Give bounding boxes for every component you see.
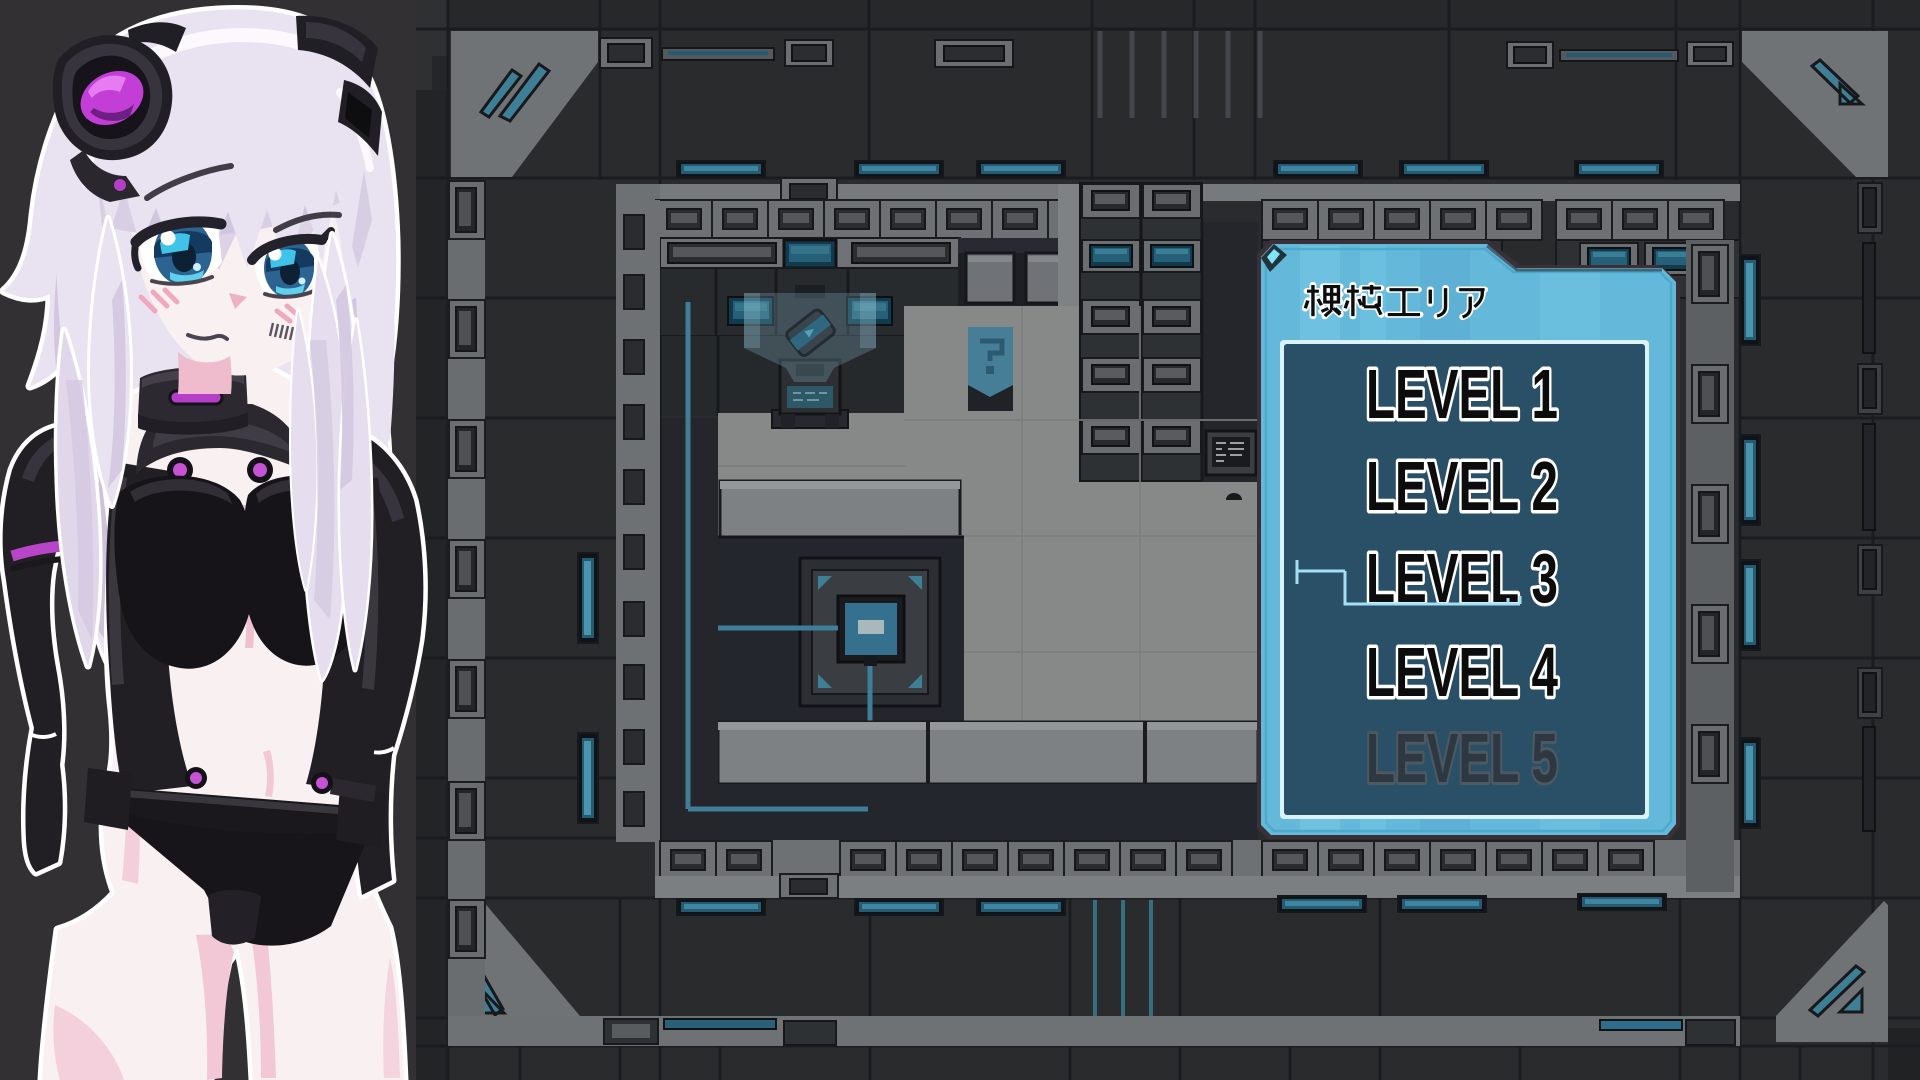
svg-text:LEVEL 5: LEVEL 5 xyxy=(1366,719,1558,797)
svg-text:LEVEL 1: LEVEL 1 xyxy=(1366,355,1558,433)
svg-text:LEVEL 2: LEVEL 2 xyxy=(1366,447,1558,525)
svg-text:LEVEL 4: LEVEL 4 xyxy=(1366,633,1558,711)
